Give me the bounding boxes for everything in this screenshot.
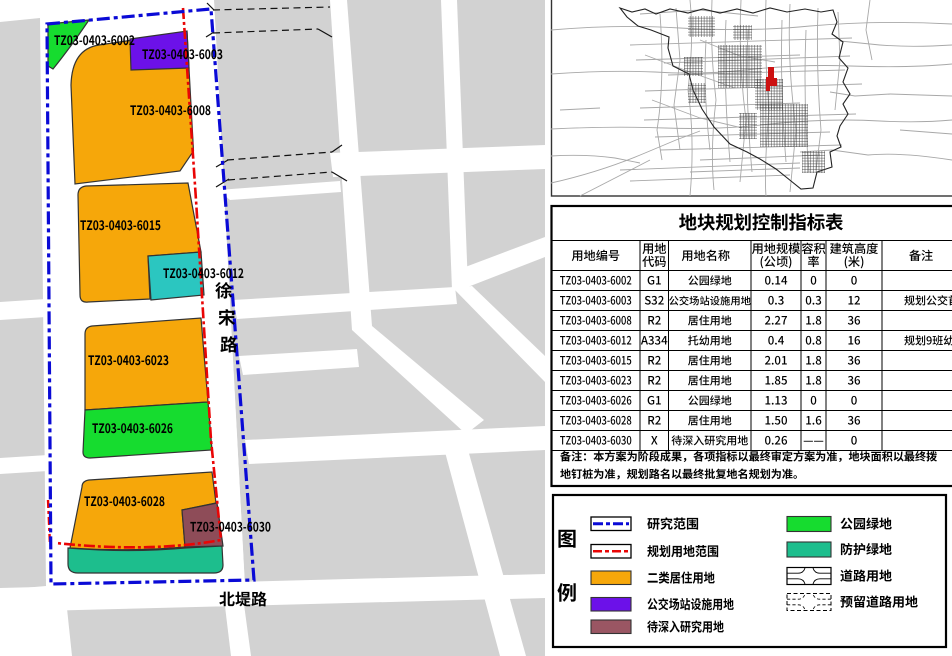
- svg-text:0.3: 0.3: [805, 293, 822, 309]
- svg-text:居住用地: 居住用地: [688, 313, 732, 329]
- svg-text:地钉桩为准，规划路名以最终批复地名规划为准。: 地钉桩为准，规划路名以最终批复地名规划为准。: [560, 466, 804, 482]
- svg-text:1.8: 1.8: [805, 313, 822, 329]
- svg-text:TZ03-0403-6026: TZ03-0403-6026: [560, 393, 632, 409]
- svg-text:TZ03-0403-6026: TZ03-0403-6026: [92, 418, 173, 437]
- svg-text:地块规划控制指标表: 地块规划控制指标表: [679, 209, 844, 235]
- svg-text:2.01: 2.01: [764, 353, 787, 369]
- svg-text:0.3: 0.3: [768, 293, 785, 309]
- svg-text:二类居住用地: 二类居住用地: [647, 567, 715, 586]
- svg-text:0.14: 0.14: [764, 273, 788, 289]
- svg-text:北堤路: 北堤路: [219, 586, 267, 610]
- svg-text:规划用地范围: 规划用地范围: [647, 541, 719, 560]
- svg-text:R2: R2: [647, 373, 661, 389]
- svg-text:预留道路用地: 预留道路用地: [840, 592, 918, 611]
- svg-text:代码: 代码: [642, 252, 666, 270]
- svg-text:0.26: 0.26: [764, 433, 788, 449]
- svg-text:1.8: 1.8: [805, 373, 822, 389]
- svg-text:TZ03-0403-6015: TZ03-0403-6015: [80, 215, 161, 234]
- svg-text:居住用地: 居住用地: [688, 353, 732, 369]
- svg-text:例: 例: [557, 577, 577, 606]
- svg-text:TZ03-0403-6002: TZ03-0403-6002: [560, 273, 632, 289]
- svg-text:(公顷): (公顷): [759, 252, 792, 270]
- svg-text:TZ03-0403-6003: TZ03-0403-6003: [560, 293, 632, 309]
- svg-text:G1: G1: [647, 273, 662, 289]
- svg-text:12: 12: [847, 293, 860, 309]
- svg-text:研究范围: 研究范围: [647, 513, 699, 532]
- svg-text:公园绿地: 公园绿地: [688, 273, 732, 289]
- svg-text:——: ——: [803, 433, 824, 449]
- svg-text:TZ03-0403-6023: TZ03-0403-6023: [560, 373, 632, 389]
- svg-text:X: X: [651, 433, 658, 449]
- svg-text:0: 0: [851, 433, 858, 449]
- svg-text:徐: 徐: [215, 278, 233, 303]
- svg-text:1.8: 1.8: [805, 353, 822, 369]
- svg-text:图: 图: [557, 523, 577, 552]
- svg-text:TZ03-0403-6008: TZ03-0403-6008: [560, 313, 632, 329]
- svg-text:待深入研究用地: 待深入研究用地: [647, 616, 724, 635]
- svg-text:R2: R2: [647, 353, 661, 369]
- svg-text:TZ03-0403-6015: TZ03-0403-6015: [560, 353, 632, 369]
- svg-text:1.50: 1.50: [764, 413, 788, 429]
- svg-text:16: 16: [847, 333, 861, 349]
- svg-text:0.4: 0.4: [768, 333, 785, 349]
- svg-text:道路用地: 道路用地: [840, 566, 892, 585]
- svg-text:路: 路: [220, 332, 238, 357]
- svg-text:(米): (米): [844, 252, 865, 270]
- svg-text:待深入研究用地: 待深入研究用地: [671, 433, 748, 449]
- svg-text:TZ03-0403-6012: TZ03-0403-6012: [560, 333, 632, 349]
- svg-text:36: 36: [847, 373, 861, 389]
- svg-text:居住用地: 居住用地: [688, 373, 732, 389]
- svg-text:0: 0: [810, 393, 817, 409]
- svg-text:公交场站设施用地: 公交场站设施用地: [669, 293, 751, 308]
- svg-text:用地编号: 用地编号: [571, 246, 620, 264]
- svg-text:1.85: 1.85: [764, 373, 787, 389]
- svg-text:36: 36: [847, 313, 861, 329]
- svg-text:0.8: 0.8: [805, 333, 822, 349]
- svg-text:TZ03-0403-6023: TZ03-0403-6023: [88, 350, 169, 369]
- svg-text:居住用地: 居住用地: [688, 413, 732, 429]
- svg-text:A334: A334: [641, 333, 668, 349]
- svg-text:用地名称: 用地名称: [681, 246, 730, 264]
- svg-text:R2: R2: [647, 313, 661, 329]
- svg-text:规划公交首末站: 规划公交首末站: [904, 293, 952, 309]
- svg-text:防护绿地: 防护绿地: [840, 539, 892, 558]
- svg-text:宋: 宋: [218, 305, 236, 330]
- svg-text:0: 0: [810, 273, 817, 289]
- svg-text:36: 36: [847, 353, 861, 369]
- svg-text:2.27: 2.27: [764, 313, 788, 329]
- svg-text:TZ03-0403-6002: TZ03-0403-6002: [54, 30, 135, 49]
- svg-text:36: 36: [847, 413, 861, 429]
- svg-text:0: 0: [851, 393, 858, 409]
- svg-text:TZ03-0403-6003: TZ03-0403-6003: [142, 44, 223, 63]
- svg-text:规划9班幼儿园: 规划9班幼儿园: [904, 333, 952, 349]
- svg-text:0: 0: [851, 273, 858, 289]
- svg-text:1.13: 1.13: [764, 393, 787, 409]
- svg-text:率: 率: [807, 252, 819, 270]
- svg-text:公园绿地: 公园绿地: [688, 393, 732, 409]
- svg-text:备注：本方案为阶段成果，各项指标以最终审定方案为准，地块面积: 备注：本方案为阶段成果，各项指标以最终审定方案为准，地块面积以最终拨: [560, 449, 937, 465]
- svg-text:G1: G1: [647, 393, 662, 409]
- svg-text:公园绿地: 公园绿地: [840, 514, 892, 533]
- svg-text:TZ03-0403-6028: TZ03-0403-6028: [560, 413, 632, 429]
- svg-text:1.6: 1.6: [805, 413, 822, 429]
- svg-text:TZ03-0403-6030: TZ03-0403-6030: [190, 517, 271, 536]
- svg-text:公交场站设施用地: 公交场站设施用地: [647, 594, 734, 613]
- svg-text:TZ03-0403-6030: TZ03-0403-6030: [560, 433, 632, 449]
- svg-text:托幼用地: 托幼用地: [688, 333, 732, 349]
- svg-text:R2: R2: [647, 413, 661, 429]
- svg-text:备注: 备注: [909, 246, 933, 264]
- svg-text:S32: S32: [644, 293, 664, 309]
- svg-text:TZ03-0403-6028: TZ03-0403-6028: [84, 491, 165, 510]
- svg-text:TZ03-0403-6008: TZ03-0403-6008: [130, 100, 211, 119]
